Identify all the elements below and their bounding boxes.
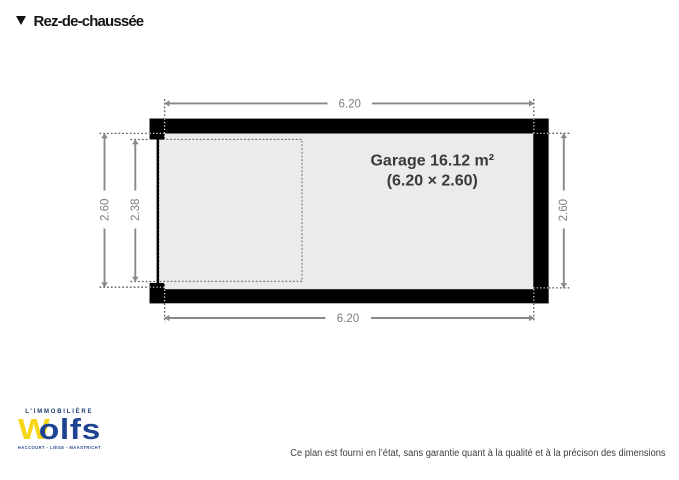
svg-text:(6.20 × 2.60): (6.20 × 2.60) xyxy=(387,173,478,190)
svg-text:2.60: 2.60 xyxy=(99,199,111,221)
svg-text:6.20: 6.20 xyxy=(337,313,359,325)
svg-text:6.20: 6.20 xyxy=(339,98,361,110)
svg-text:2.38: 2.38 xyxy=(130,199,142,221)
svg-text:Garage 16.12 m²: Garage 16.12 m² xyxy=(370,153,494,170)
svg-text:2.60: 2.60 xyxy=(558,199,570,221)
